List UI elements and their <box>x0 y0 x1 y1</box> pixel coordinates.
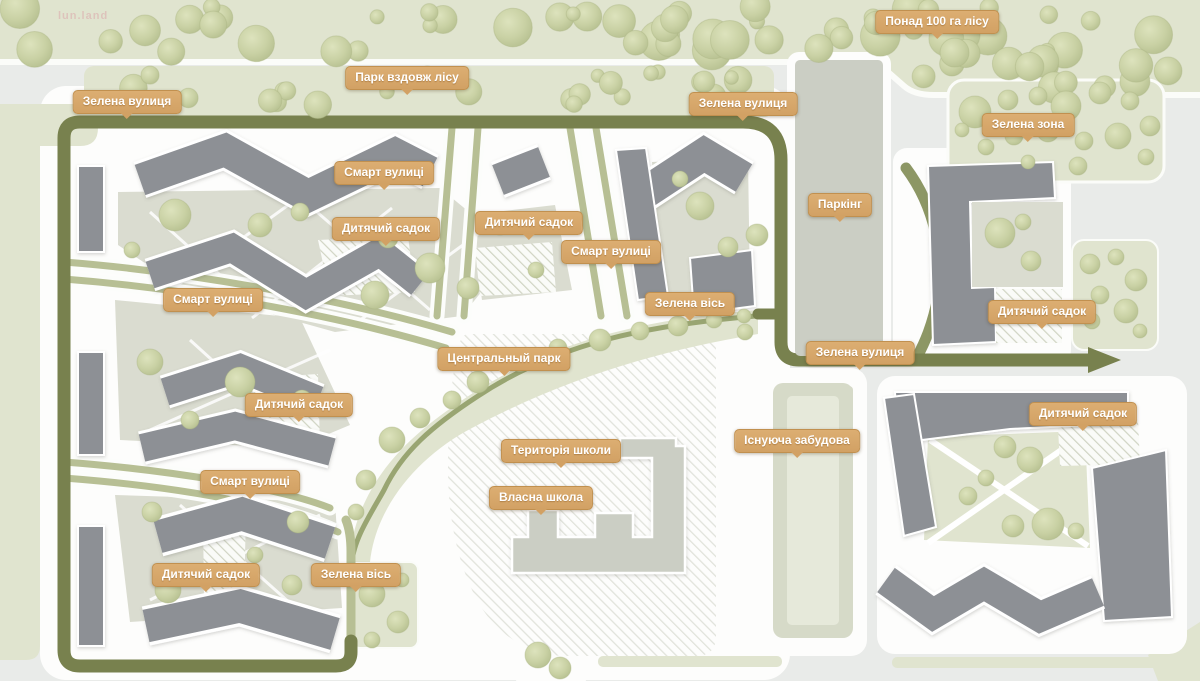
tree <box>1002 515 1024 537</box>
tree <box>510 352 530 372</box>
tree <box>291 203 309 221</box>
tree <box>755 26 783 54</box>
tree <box>912 65 935 88</box>
masterplan-canvas <box>0 0 1200 681</box>
tree <box>978 139 994 155</box>
tree <box>549 657 571 679</box>
tree <box>1081 11 1100 30</box>
tree <box>644 66 659 81</box>
tree <box>247 547 263 563</box>
tree <box>356 470 376 490</box>
tree <box>1089 82 1111 104</box>
parking-area <box>795 60 883 356</box>
tree <box>706 312 722 328</box>
tree <box>566 7 580 21</box>
tree <box>1068 523 1084 539</box>
tree <box>443 391 461 409</box>
tree <box>1080 254 1100 274</box>
tree <box>1037 120 1059 142</box>
tree <box>494 8 533 47</box>
tree <box>998 90 1018 110</box>
tree <box>222 290 242 310</box>
tree <box>1135 16 1173 54</box>
tree <box>980 0 999 17</box>
tree <box>1084 313 1100 329</box>
tree <box>1091 286 1109 304</box>
tree <box>282 575 302 595</box>
tree <box>549 339 567 357</box>
tree <box>321 36 352 67</box>
green-axis-strip <box>346 520 351 640</box>
tree <box>155 577 181 603</box>
tree <box>1075 132 1093 150</box>
tree <box>623 30 648 55</box>
tree <box>566 96 583 113</box>
tree <box>599 71 622 94</box>
existing-building <box>773 383 853 638</box>
tree <box>142 502 162 522</box>
tree <box>1032 508 1064 540</box>
tree <box>1015 52 1044 81</box>
tree <box>710 20 749 59</box>
tree <box>415 253 445 283</box>
tree <box>525 642 551 668</box>
tree <box>985 218 1015 248</box>
tree <box>258 89 282 113</box>
tree <box>686 192 714 220</box>
tree <box>370 10 384 24</box>
tree <box>238 25 274 61</box>
tree <box>725 71 739 85</box>
tree <box>359 581 385 607</box>
tree <box>1015 214 1031 230</box>
tree <box>805 34 833 62</box>
tree <box>99 30 123 54</box>
tree <box>200 11 227 38</box>
tree <box>1119 49 1153 83</box>
tree <box>1029 87 1047 105</box>
tree <box>124 242 140 258</box>
tree <box>940 38 969 67</box>
tree <box>1105 123 1131 149</box>
tree <box>589 329 611 351</box>
tree <box>1051 91 1081 121</box>
building-footprint <box>690 250 755 314</box>
boulevard-strip <box>598 656 782 667</box>
building-footprint <box>1092 450 1172 621</box>
tree <box>746 224 768 246</box>
watermark: lun.land <box>58 10 108 22</box>
tree <box>1121 92 1139 110</box>
tree <box>379 427 405 453</box>
tree <box>1040 6 1058 24</box>
tree <box>176 5 204 33</box>
tree <box>978 470 994 486</box>
tree <box>737 309 751 323</box>
tree <box>456 79 482 105</box>
tree <box>1140 116 1160 136</box>
tree <box>421 4 438 21</box>
tree <box>395 573 409 587</box>
tree <box>830 26 853 49</box>
tree <box>672 171 688 187</box>
tree <box>1133 324 1147 338</box>
courtyard <box>972 202 1063 287</box>
tree <box>1114 299 1138 323</box>
tree <box>1154 57 1182 85</box>
tree <box>361 281 389 309</box>
tree <box>380 84 395 99</box>
tree <box>491 217 509 235</box>
tree <box>141 66 159 84</box>
tree <box>959 487 977 505</box>
tree <box>292 390 312 410</box>
masterplan-map: Понад 100 га лісуПарк вздовж лісуЗелена … <box>0 0 1200 681</box>
tree <box>159 199 191 231</box>
tree <box>918 0 939 20</box>
tree <box>668 316 688 336</box>
tree <box>137 349 163 375</box>
tree <box>1108 249 1124 265</box>
tree <box>693 71 714 92</box>
block-ne <box>928 162 1063 345</box>
tree <box>179 88 198 107</box>
green-pad <box>352 562 418 648</box>
tree <box>158 38 185 65</box>
tree <box>410 408 430 428</box>
tree <box>1125 269 1147 291</box>
tree <box>1005 127 1023 145</box>
tree <box>287 511 309 533</box>
tree <box>718 237 738 257</box>
tree <box>457 277 479 299</box>
tree <box>737 324 753 340</box>
tree <box>181 411 199 429</box>
tree <box>378 228 398 248</box>
tree <box>994 436 1016 458</box>
tree <box>387 611 409 633</box>
tree <box>364 632 380 648</box>
tree <box>1021 251 1041 271</box>
tree <box>631 322 649 340</box>
tree <box>130 15 161 46</box>
tree <box>467 371 489 393</box>
tree <box>1021 155 1035 169</box>
tree <box>17 32 53 68</box>
tree <box>661 6 689 34</box>
tree <box>1017 447 1043 473</box>
tree <box>528 262 544 278</box>
tree <box>225 367 255 397</box>
tree <box>417 66 437 86</box>
tree <box>304 91 332 119</box>
tree <box>348 504 364 520</box>
tree <box>864 11 887 34</box>
tree <box>1138 149 1154 165</box>
tree <box>1069 157 1087 175</box>
tree <box>248 213 272 237</box>
tree <box>955 123 969 137</box>
